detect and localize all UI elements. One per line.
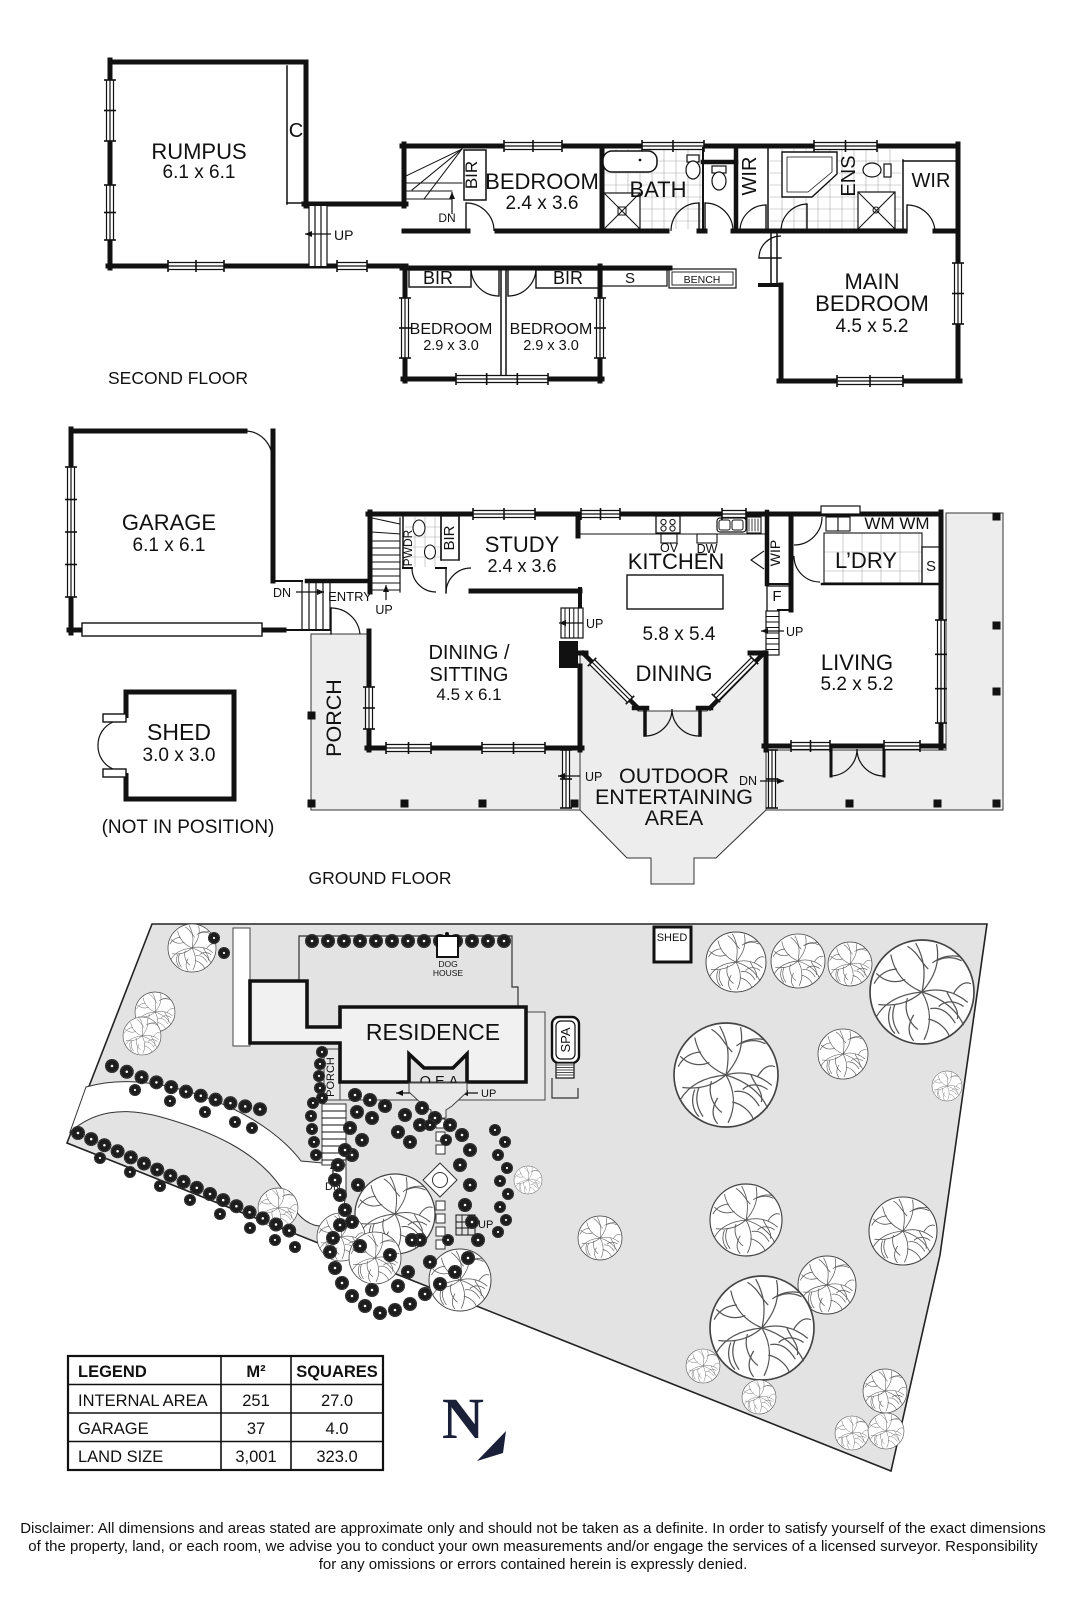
svg-text:PORCH: PORCH <box>322 679 346 757</box>
svg-text:4.0: 4.0 <box>326 1420 349 1438</box>
svg-text:STUDY: STUDY <box>485 532 560 557</box>
svg-text:HOUSE: HOUSE <box>433 968 464 978</box>
svg-text:ENS: ENS <box>838 155 860 196</box>
svg-text:SHED: SHED <box>657 932 688 944</box>
svg-text:KITCHEN: KITCHEN <box>628 549 725 574</box>
svg-text:ENTRY: ENTRY <box>328 589 372 604</box>
svg-text:INTERNAL AREA: INTERNAL AREA <box>78 1392 208 1410</box>
svg-text:3,001: 3,001 <box>235 1448 276 1466</box>
svg-text:UP: UP <box>334 227 353 243</box>
svg-text:LEGEND: LEGEND <box>78 1363 147 1381</box>
svg-text:2.4 x 3.6: 2.4 x 3.6 <box>487 556 556 576</box>
svg-text:2.9 x 3.0: 2.9 x 3.0 <box>423 338 479 354</box>
svg-text:BIR: BIR <box>441 525 458 550</box>
svg-text:WIP: WIP <box>767 540 783 566</box>
svg-text:2.4 x 3.6: 2.4 x 3.6 <box>506 193 579 214</box>
svg-text:SECOND FLOOR: SECOND FLOOR <box>108 368 248 388</box>
svg-text:WIR: WIR <box>739 157 761 196</box>
svg-text:Disclaimer: All dimensions and: Disclaimer: All dimensions and areas sta… <box>20 1520 1046 1537</box>
svg-text:BIR: BIR <box>423 268 453 288</box>
svg-text:AREA: AREA <box>645 806 704 830</box>
svg-text:SPA: SPA <box>558 1027 573 1052</box>
svg-text:LAND SIZE: LAND SIZE <box>78 1448 163 1466</box>
svg-text:6.1 x 6.1: 6.1 x 6.1 <box>133 535 206 556</box>
svg-text:37: 37 <box>247 1420 265 1438</box>
svg-text:DINING /: DINING / <box>428 642 510 664</box>
svg-text:UP: UP <box>786 625 803 639</box>
svg-text:(NOT IN POSITION): (NOT IN POSITION) <box>102 817 275 838</box>
svg-text:of the property, land, or each: of the property, land, or each room, we … <box>28 1538 1038 1555</box>
svg-text:PWDR: PWDR <box>401 529 415 566</box>
svg-text:S: S <box>625 270 635 287</box>
svg-text:2.9 x 3.0: 2.9 x 3.0 <box>523 338 579 354</box>
svg-text:RUMPUS: RUMPUS <box>151 139 246 164</box>
svg-text:BEDROOM: BEDROOM <box>510 321 593 338</box>
svg-text:DN: DN <box>273 586 291 600</box>
svg-text:for any omissions or errors co: for any omissions or errors contained he… <box>319 1556 748 1573</box>
svg-text:DINING: DINING <box>636 661 713 686</box>
svg-text:SHED: SHED <box>147 719 211 745</box>
svg-text:5.2 x 5.2: 5.2 x 5.2 <box>821 674 894 695</box>
svg-text:N: N <box>442 1386 484 1451</box>
svg-text:M²: M² <box>246 1363 266 1381</box>
svg-text:GARAGE: GARAGE <box>122 510 216 535</box>
svg-text:BATH: BATH <box>629 177 686 202</box>
svg-text:WM WM: WM WM <box>864 514 929 533</box>
svg-text:27.0: 27.0 <box>321 1392 353 1410</box>
svg-text:5.8 x 5.4: 5.8 x 5.4 <box>643 624 716 645</box>
svg-text:GARAGE: GARAGE <box>78 1420 149 1438</box>
svg-text:PORCH: PORCH <box>325 1057 337 1097</box>
svg-text:UP: UP <box>585 770 602 784</box>
svg-text:BEDROOM: BEDROOM <box>410 321 493 338</box>
svg-text:251: 251 <box>242 1392 270 1410</box>
svg-text:DN: DN <box>438 211 455 225</box>
svg-text:BEDROOM: BEDROOM <box>485 169 599 194</box>
svg-text:S: S <box>926 558 936 575</box>
svg-text:F: F <box>772 588 781 605</box>
svg-text:BENCH: BENCH <box>684 274 721 286</box>
svg-text:L’DRY: L’DRY <box>835 548 897 573</box>
svg-text:3.0 x 3.0: 3.0 x 3.0 <box>143 745 216 766</box>
svg-text:LIVING: LIVING <box>821 650 893 675</box>
svg-text:UP: UP <box>481 1088 496 1100</box>
svg-text:6.1 x 6.1: 6.1 x 6.1 <box>163 162 236 183</box>
svg-text:SITTING: SITTING <box>430 664 509 686</box>
svg-text:WIR: WIR <box>912 170 951 192</box>
svg-text:C: C <box>289 120 303 142</box>
svg-text:323.0: 323.0 <box>316 1448 357 1466</box>
svg-text:4.5 x 6.1: 4.5 x 6.1 <box>436 685 501 704</box>
svg-text:UP: UP <box>586 617 603 631</box>
svg-text:BEDROOM: BEDROOM <box>815 291 929 316</box>
svg-text:BIR: BIR <box>553 268 583 288</box>
svg-text:BIR: BIR <box>462 161 481 189</box>
svg-text:4.5 x 5.2: 4.5 x 5.2 <box>836 316 909 337</box>
svg-text:UP: UP <box>478 1219 493 1231</box>
svg-text:UP: UP <box>375 603 392 617</box>
svg-text:GROUND FLOOR: GROUND FLOOR <box>309 868 452 888</box>
svg-text:SQUARES: SQUARES <box>296 1363 378 1381</box>
svg-text:RESIDENCE: RESIDENCE <box>366 1019 500 1045</box>
